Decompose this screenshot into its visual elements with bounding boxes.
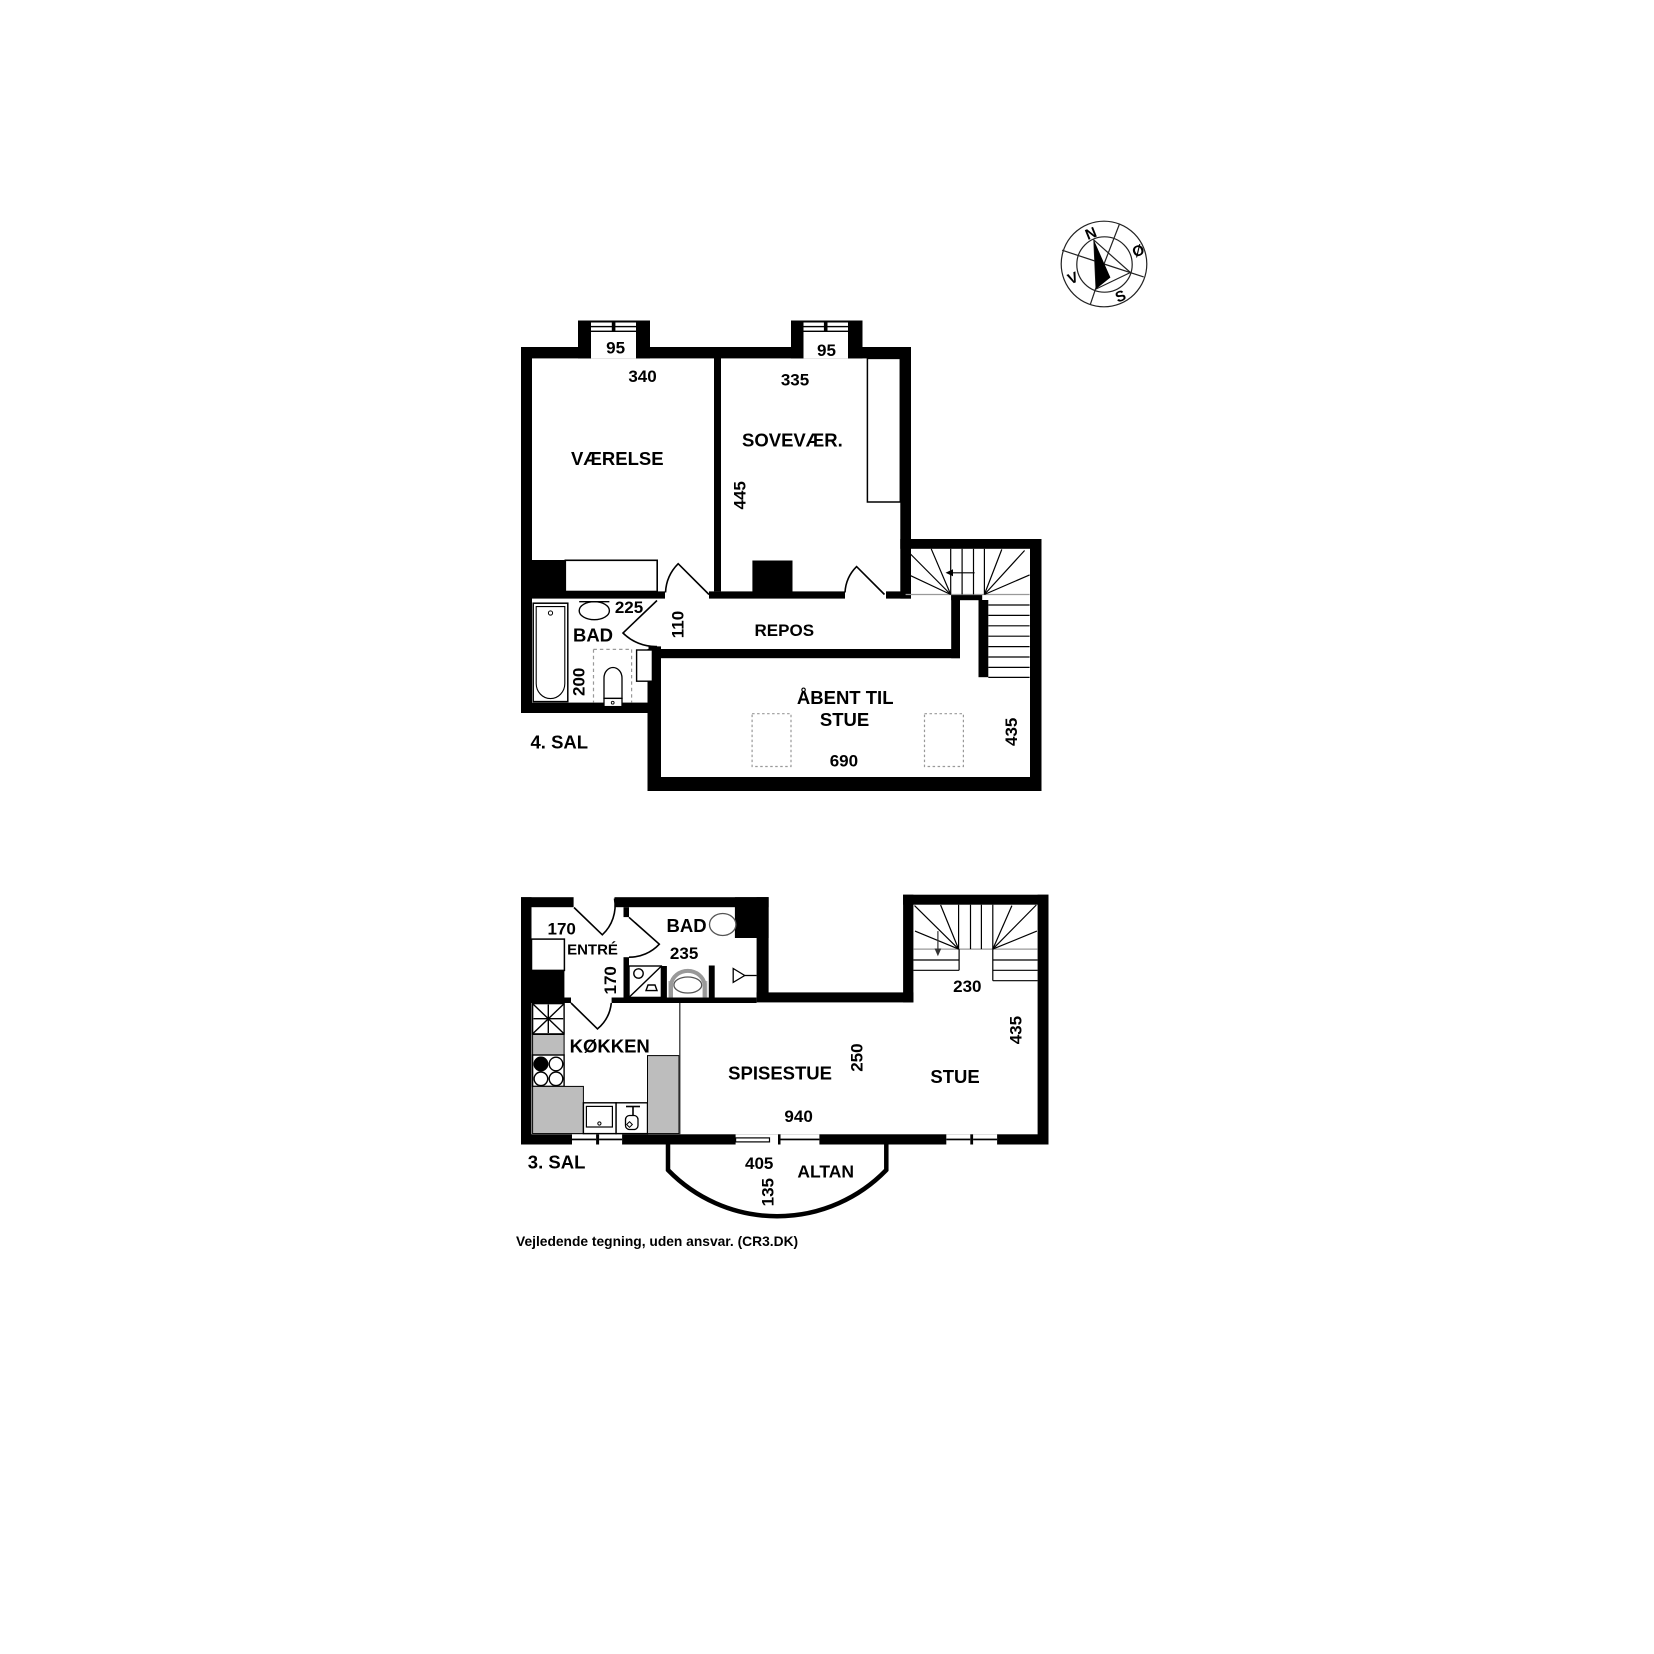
svg-text:BAD: BAD xyxy=(573,625,613,646)
svg-text:VÆRELSE: VÆRELSE xyxy=(571,448,664,469)
svg-text:ALTAN: ALTAN xyxy=(797,1162,854,1182)
svg-text:200: 200 xyxy=(570,668,589,696)
svg-text:335: 335 xyxy=(781,371,809,390)
svg-text:BAD: BAD xyxy=(667,915,707,936)
svg-text:235: 235 xyxy=(670,944,698,963)
svg-text:690: 690 xyxy=(830,752,858,771)
svg-text:SPISESTUE: SPISESTUE xyxy=(728,1062,832,1083)
svg-text:REPOS: REPOS xyxy=(755,621,815,640)
svg-text:250: 250 xyxy=(848,1043,867,1071)
svg-text:STUE: STUE xyxy=(930,1066,979,1087)
svg-text:170: 170 xyxy=(601,966,620,994)
svg-text:435: 435 xyxy=(1002,718,1021,746)
svg-text:940: 940 xyxy=(784,1107,812,1126)
svg-text:340: 340 xyxy=(628,367,656,386)
svg-text:Vejledende tegning, uden ansva: Vejledende tegning, uden ansvar. (CR3.DK… xyxy=(516,1234,798,1249)
svg-text:135: 135 xyxy=(758,1178,777,1206)
svg-text:SOVEVÆR.: SOVEVÆR. xyxy=(742,430,843,451)
svg-text:3. SAL: 3. SAL xyxy=(528,1152,586,1173)
svg-text:ENTRÉ: ENTRÉ xyxy=(567,942,618,959)
svg-text:230: 230 xyxy=(953,977,981,996)
svg-text:95: 95 xyxy=(817,341,836,360)
svg-text:STUE: STUE xyxy=(820,709,869,730)
svg-text:170: 170 xyxy=(548,919,576,938)
svg-text:KØKKEN: KØKKEN xyxy=(570,1036,650,1057)
svg-text:95: 95 xyxy=(606,339,625,358)
svg-text:110: 110 xyxy=(669,611,688,638)
svg-text:225: 225 xyxy=(615,598,643,617)
svg-text:435: 435 xyxy=(1007,1016,1026,1044)
svg-text:ÅBENT TIL: ÅBENT TIL xyxy=(797,687,894,708)
svg-text:4. SAL: 4. SAL xyxy=(531,732,589,753)
svg-text:405: 405 xyxy=(745,1154,773,1173)
svg-text:445: 445 xyxy=(731,481,750,509)
